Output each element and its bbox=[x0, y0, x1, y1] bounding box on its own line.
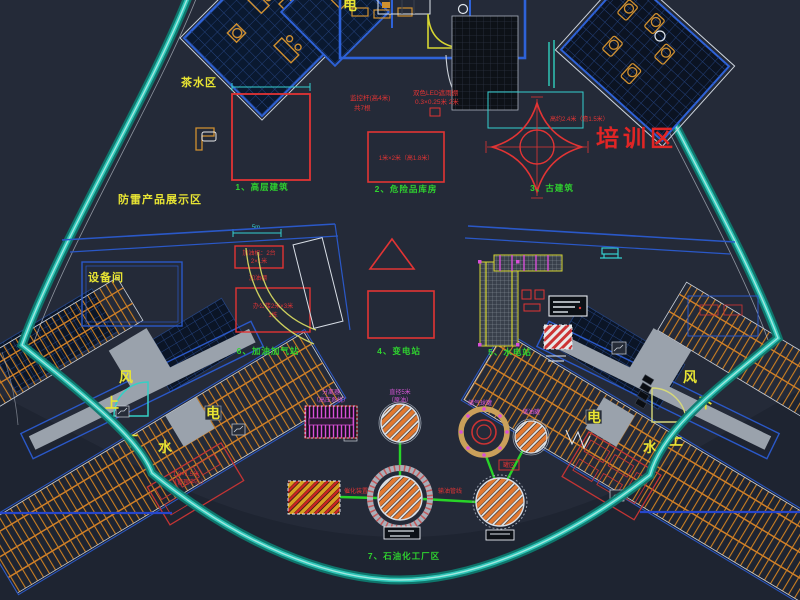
hazmat-dims: 1米×2米（高1.8米） bbox=[379, 154, 434, 162]
wing-label-wind: 风 bbox=[683, 369, 697, 385]
separator-unit bbox=[305, 406, 357, 438]
item-label-3: 3、古建筑 bbox=[530, 183, 574, 193]
zone-label-training: 培训区 bbox=[596, 125, 677, 151]
item-label-5: 5、水电站 bbox=[488, 347, 532, 357]
wing-label-wind: 风 bbox=[119, 369, 133, 385]
name-plaque bbox=[549, 296, 587, 316]
cad-drawing: 1.8×1.5米 （管理中心） 风 上 下 水 电 bbox=[0, 0, 800, 600]
zone-label-equipment: 设备间 bbox=[88, 270, 124, 284]
item-label-2: 2、危险品库房 bbox=[375, 184, 438, 194]
separator-label: （高压系统） bbox=[313, 396, 349, 404]
ancient-note: 高约2.4米（檐1.5米） bbox=[550, 115, 609, 123]
item-label-6: 6、加油加气站 bbox=[237, 346, 300, 356]
wing-label-power: 电 bbox=[206, 405, 220, 421]
oil-tank-label: 储油罐 bbox=[522, 408, 540, 416]
svg-text:罐区: 罐区 bbox=[503, 461, 515, 469]
oil-tank-small bbox=[513, 419, 549, 455]
svg-text:0.3×0.25米 2米: 0.3×0.25米 2米 bbox=[415, 97, 459, 106]
tank-label: （原油） bbox=[388, 396, 412, 404]
wing-label-power: 电 bbox=[343, 0, 357, 13]
pipe-label-right: 输油管线 bbox=[438, 487, 462, 495]
wing-label-up: 上 bbox=[105, 395, 119, 411]
zone-label-display: 防雷产品展示区 bbox=[118, 192, 202, 206]
crude-tank bbox=[379, 402, 421, 444]
svg-text:监控杆(高4米): 监控杆(高4米) bbox=[350, 93, 390, 102]
wing-label-water: 水 bbox=[158, 439, 173, 455]
tank-label: 直径5米 bbox=[389, 388, 410, 396]
mgmt-note-dims: 1.8×1.5米 bbox=[173, 470, 199, 478]
separator-label: 分离器 bbox=[322, 388, 340, 396]
wing-label-power: 电 bbox=[587, 409, 601, 425]
dark-tile-area bbox=[452, 16, 518, 110]
item-label-7: 7、石油化工厂区 bbox=[368, 551, 440, 561]
sphere-label: 储气球罐 bbox=[468, 399, 492, 407]
svg-text:共7根: 共7根 bbox=[354, 103, 371, 112]
cad-floorplan-canvas: 1.8×1.5米 （管理中心） 风 上 下 水 电 bbox=[0, 0, 800, 600]
pump-pad bbox=[288, 481, 340, 514]
svg-text:双色LED遮雨棚: 双色LED遮雨棚 bbox=[413, 88, 459, 97]
svg-text:办公楼2米×3米: 办公楼2米×3米 bbox=[253, 302, 293, 310]
item-label-4: 4、变电站 bbox=[377, 346, 421, 356]
zone-label-tea: 茶水区 bbox=[180, 75, 217, 89]
pipe-label-left: 催化装置 bbox=[344, 487, 368, 495]
stair-icon bbox=[232, 424, 245, 435]
stair-icon bbox=[612, 342, 626, 354]
item-label-1: 1、高层建筑 bbox=[235, 182, 288, 192]
mgmt-note-label: （管理中心） bbox=[171, 478, 207, 486]
